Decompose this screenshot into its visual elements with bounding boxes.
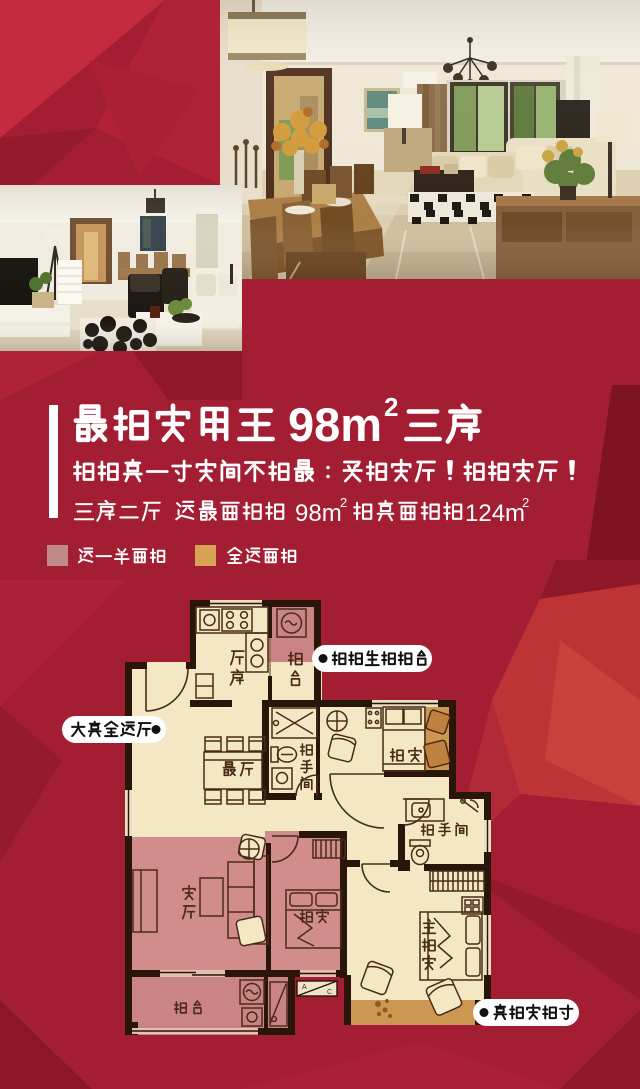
svg-text:C: C	[327, 989, 332, 996]
svg-text:2: 2	[384, 392, 398, 422]
svg-text:A: A	[302, 984, 307, 991]
svg-text:124m: 124m	[465, 500, 525, 527]
svg-text:98m: 98m	[295, 500, 342, 527]
svg-text:2: 2	[522, 495, 529, 510]
svg-text:98m: 98m	[288, 398, 382, 451]
svg-text:2: 2	[340, 495, 347, 510]
